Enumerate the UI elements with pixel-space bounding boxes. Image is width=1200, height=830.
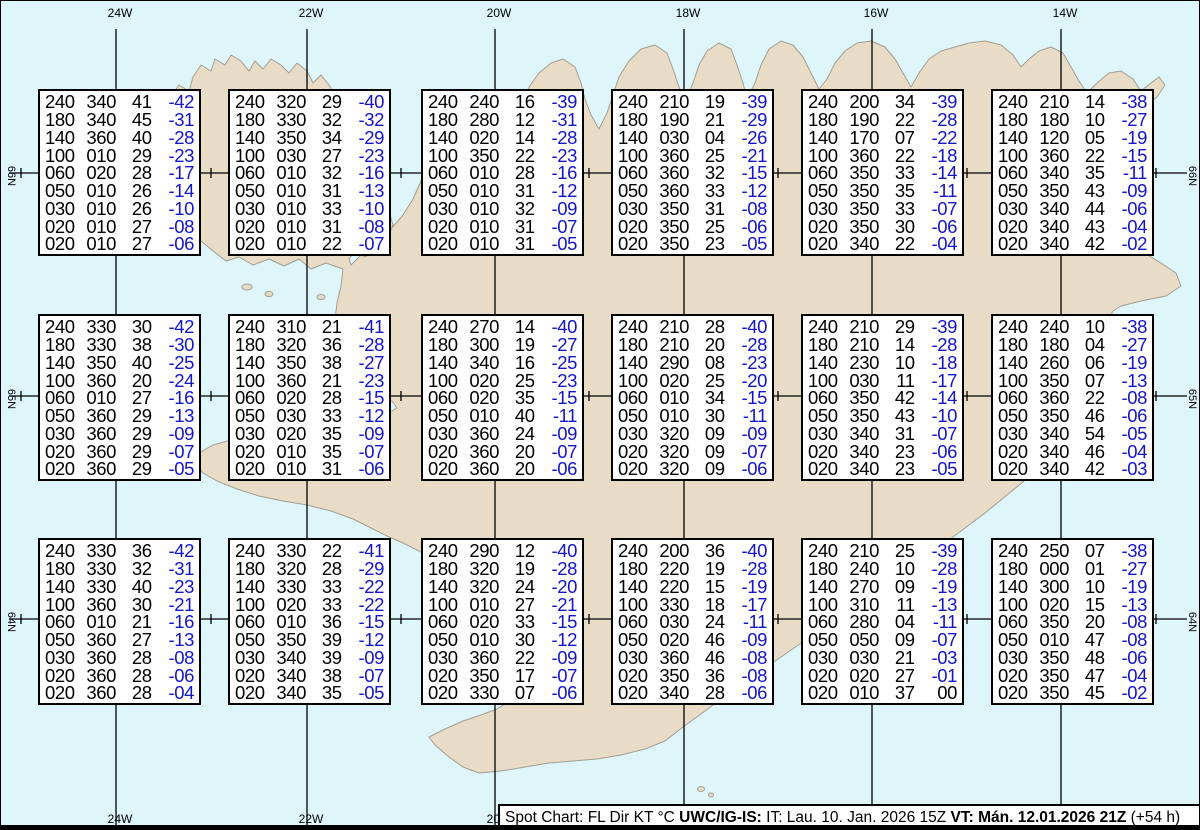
spot-wind-direction: 360 — [659, 182, 693, 199]
spot-row: 02035025-06 — [618, 218, 767, 235]
spot-wind-direction: 020 — [276, 389, 310, 406]
spot-row: 05035043-09 — [998, 182, 1147, 199]
spot-temperature: -02 — [1112, 235, 1147, 252]
spot-wind-direction: 030 — [659, 129, 693, 146]
spot-row: 02034028-06 — [618, 684, 767, 701]
spot-row: 14026006-19 — [998, 354, 1147, 371]
spot-temperature: -09 — [1112, 182, 1147, 199]
spot-flight-level: 050 — [235, 631, 269, 648]
spot-wind-speed-kt: 23 — [891, 460, 915, 477]
spot-flight-level: 140 — [235, 578, 269, 595]
spot-flight-level: 020 — [428, 684, 462, 701]
spot-temperature: -30 — [159, 336, 194, 353]
spot-flight-level: 050 — [998, 407, 1032, 424]
spot-flight-level: 020 — [998, 218, 1032, 235]
spot-row: 02034035-05 — [235, 684, 384, 701]
spot-wind-speed-kt: 31 — [318, 460, 342, 477]
spot-flight-level: 180 — [428, 336, 462, 353]
spot-wind-speed-kt: 24 — [511, 578, 535, 595]
spot-temperature: -06 — [922, 443, 957, 460]
spot-temperature: -06 — [1112, 200, 1147, 217]
spot-box: 24032029-4018033032-3214035034-291000302… — [228, 89, 391, 256]
spot-row: 05035035-11 — [808, 182, 957, 199]
spot-row: 03034031-07 — [808, 425, 957, 442]
spot-temperature: -20 — [732, 372, 767, 389]
spot-temperature: -26 — [732, 129, 767, 146]
spot-wind-direction: 030 — [276, 407, 310, 424]
spot-wind-speed-kt: 27 — [318, 147, 342, 164]
spot-flight-level: 020 — [618, 218, 652, 235]
spot-wind-direction: 350 — [1039, 182, 1073, 199]
spot-flight-level: 180 — [998, 560, 1032, 577]
spot-flight-level: 240 — [45, 93, 79, 110]
spot-flight-level: 020 — [45, 235, 79, 252]
spot-wind-direction: 210 — [659, 336, 693, 353]
spot-row: 10002033-22 — [235, 596, 384, 613]
spot-wind-speed-kt: 32 — [318, 111, 342, 128]
spot-wind-speed-kt: 11 — [891, 596, 915, 613]
spot-flight-level: 180 — [45, 111, 79, 128]
spot-wind-speed-kt: 07 — [1081, 542, 1105, 559]
spot-flight-level: 050 — [618, 407, 652, 424]
spot-temperature: -17 — [732, 596, 767, 613]
spot-wind-direction: 010 — [276, 182, 310, 199]
spot-wind-speed-kt: 12 — [511, 542, 535, 559]
spot-wind-speed-kt: 43 — [1081, 218, 1105, 235]
spot-temperature: -28 — [922, 560, 957, 577]
spot-wind-speed-kt: 14 — [511, 318, 535, 335]
spot-temperature: -11 — [922, 613, 957, 630]
longitude-label-top: 24W — [108, 6, 133, 20]
spot-flight-level: 020 — [45, 443, 79, 460]
spot-row: 18018010-27 — [998, 111, 1147, 128]
spot-wind-direction: 340 — [276, 667, 310, 684]
spot-row: 14023010-18 — [808, 354, 957, 371]
spot-row: 05001031-12 — [428, 182, 577, 199]
latitude-label-left: 66N — [5, 166, 17, 186]
spot-wind-direction: 360 — [1039, 389, 1073, 406]
spot-wind-direction: 010 — [469, 218, 503, 235]
spot-flight-level: 020 — [808, 667, 842, 684]
spot-temperature: -39 — [542, 93, 577, 110]
spot-wind-direction: 360 — [86, 667, 120, 684]
spot-flight-level: 050 — [618, 631, 652, 648]
spot-temperature: -14 — [159, 182, 194, 199]
spot-temperature: -12 — [542, 182, 577, 199]
spot-wind-speed-kt: 31 — [511, 218, 535, 235]
spot-wind-speed-kt: 25 — [701, 147, 725, 164]
spot-wind-direction: 350 — [849, 182, 883, 199]
spot-wind-speed-kt: 37 — [891, 684, 915, 701]
spot-row: 10003011-17 — [808, 372, 957, 389]
spot-wind-direction: 010 — [469, 164, 503, 181]
spot-wind-speed-kt: 12 — [511, 111, 535, 128]
spot-wind-direction: 360 — [86, 649, 120, 666]
spot-temperature: -42 — [159, 93, 194, 110]
spot-wind-direction: 340 — [1039, 200, 1073, 217]
spot-box: 24020034-3918019022-2814017007-221003602… — [801, 89, 964, 256]
spot-wind-direction: 340 — [1039, 425, 1073, 442]
spot-wind-direction: 360 — [469, 460, 503, 477]
spot-temperature: -07 — [542, 443, 577, 460]
spot-flight-level: 180 — [808, 560, 842, 577]
spot-row: 24027014-40 — [428, 318, 577, 335]
spot-wind-direction: 350 — [276, 129, 310, 146]
spot-wind-direction: 350 — [276, 631, 310, 648]
footer-text: (+54 h) — [1126, 809, 1180, 826]
spot-flight-level: 140 — [45, 129, 79, 146]
spot-wind-speed-kt: 30 — [128, 596, 152, 613]
latitude-label-right: 65N — [1186, 389, 1198, 409]
spot-wind-speed-kt: 33 — [701, 182, 725, 199]
spot-wind-direction: 010 — [1039, 631, 1073, 648]
spot-temperature: -09 — [159, 425, 194, 442]
longitude-label-top: 22W — [299, 6, 324, 20]
spot-temperature: -14 — [922, 164, 957, 181]
spot-row: 18032036-28 — [235, 336, 384, 353]
spot-temperature: -04 — [1112, 443, 1147, 460]
spot-wind-direction: 240 — [1039, 318, 1073, 335]
spot-temperature: -39 — [922, 318, 957, 335]
spot-temperature: -05 — [1112, 425, 1147, 442]
spot-row: 03002035-09 — [235, 425, 384, 442]
spot-temperature: -15 — [349, 389, 384, 406]
spot-flight-level: 020 — [808, 460, 842, 477]
spot-wind-direction: 010 — [276, 200, 310, 217]
spot-row: 05003033-12 — [235, 407, 384, 424]
latitude-label-left: 65N — [5, 389, 17, 409]
spot-wind-direction: 360 — [469, 649, 503, 666]
spot-flight-level: 100 — [235, 372, 269, 389]
spot-wind-speed-kt: 22 — [1081, 389, 1105, 406]
spot-wind-speed-kt: 28 — [318, 389, 342, 406]
spot-wind-direction: 010 — [276, 443, 310, 460]
spot-row: 18024010-28 — [808, 560, 957, 577]
spot-wind-speed-kt: 09 — [701, 460, 725, 477]
spot-flight-level: 020 — [45, 218, 79, 235]
spot-wind-speed-kt: 35 — [318, 425, 342, 442]
spot-row: 24025007-38 — [998, 542, 1147, 559]
spot-wind-direction: 350 — [1039, 407, 1073, 424]
spot-temperature: -15 — [732, 164, 767, 181]
spot-flight-level: 240 — [998, 318, 1032, 335]
spot-temperature: -28 — [732, 560, 767, 577]
spot-temperature: -22 — [349, 578, 384, 595]
spot-wind-speed-kt: 15 — [1081, 596, 1105, 613]
spot-row: 02034043-04 — [998, 218, 1147, 235]
spot-wind-speed-kt: 16 — [511, 354, 535, 371]
spot-flight-level: 020 — [998, 667, 1032, 684]
spot-wind-speed-kt: 14 — [511, 129, 535, 146]
spot-wind-speed-kt: 29 — [128, 407, 152, 424]
spot-temperature: -14 — [922, 389, 957, 406]
spot-row: 06036032-15 — [618, 164, 767, 181]
spot-wind-speed-kt: 46 — [701, 649, 725, 666]
spot-wind-speed-kt: 22 — [511, 649, 535, 666]
spot-row: 14035034-29 — [235, 129, 384, 146]
spot-flight-level: 180 — [235, 560, 269, 577]
spot-flight-level: 140 — [808, 129, 842, 146]
spot-wind-speed-kt: 10 — [1081, 318, 1105, 335]
spot-flight-level: 180 — [998, 111, 1032, 128]
spot-row: 05002046-09 — [618, 631, 767, 648]
spot-wind-speed-kt: 27 — [128, 235, 152, 252]
spot-row: 02001031-05 — [428, 235, 577, 252]
spot-wind-speed-kt: 33 — [318, 578, 342, 595]
spot-box: 24025007-3818000001-2714030010-191000201… — [991, 538, 1154, 705]
spot-row: 10036020-24 — [45, 372, 194, 389]
spot-row: 05036029-13 — [45, 407, 194, 424]
spot-wind-direction: 350 — [1039, 684, 1073, 701]
spot-wind-speed-kt: 31 — [318, 218, 342, 235]
spot-wind-speed-kt: 19 — [511, 560, 535, 577]
spot-row: 06001027-16 — [45, 389, 194, 406]
spot-flight-level: 020 — [428, 460, 462, 477]
spot-box: 24029012-4018032019-2814032024-201000102… — [421, 538, 584, 705]
spot-row: 14027009-19 — [808, 578, 957, 595]
spot-flight-level: 030 — [45, 649, 79, 666]
longitude-label-top: 14W — [1053, 6, 1078, 20]
spot-flight-level: 020 — [428, 667, 462, 684]
spot-wind-direction: 340 — [276, 649, 310, 666]
spot-temperature: -15 — [349, 613, 384, 630]
spot-flight-level: 240 — [808, 318, 842, 335]
spot-row: 10036022-15 — [998, 147, 1147, 164]
spot-wind-direction: 350 — [849, 407, 883, 424]
spot-row: 02001027-08 — [45, 218, 194, 235]
spot-temperature: -21 — [732, 147, 767, 164]
spot-wind-direction: 010 — [86, 200, 120, 217]
spot-wind-direction: 170 — [849, 129, 883, 146]
spot-wind-speed-kt: 17 — [511, 667, 535, 684]
latitude-label-right: 66N — [1186, 166, 1198, 186]
spot-row: 03001026-10 — [45, 200, 194, 217]
spot-row: 14032024-20 — [428, 578, 577, 595]
spot-wind-direction: 280 — [849, 613, 883, 630]
spot-row: 05035046-06 — [998, 407, 1147, 424]
spot-wind-direction: 350 — [849, 164, 883, 181]
spot-wind-speed-kt: 04 — [1081, 336, 1105, 353]
spot-row: 02035047-04 — [998, 667, 1147, 684]
spot-flight-level: 060 — [428, 164, 462, 181]
spot-flight-level: 140 — [618, 354, 652, 371]
spot-wind-speed-kt: 10 — [1081, 111, 1105, 128]
spot-wind-direction: 310 — [276, 318, 310, 335]
spot-wind-speed-kt: 33 — [318, 596, 342, 613]
spot-wind-speed-kt: 44 — [1081, 200, 1105, 217]
spot-row: 14012005-19 — [998, 129, 1147, 146]
spot-temperature: -11 — [732, 407, 767, 424]
spot-wind-speed-kt: 23 — [701, 235, 725, 252]
spot-box: 24021029-3918021014-2814023010-181000301… — [801, 314, 964, 481]
spot-row: 06002033-15 — [428, 613, 577, 630]
spot-row: 18032028-29 — [235, 560, 384, 577]
spot-wind-speed-kt: 27 — [511, 596, 535, 613]
spot-wind-speed-kt: 34 — [891, 93, 915, 110]
spot-wind-speed-kt: 04 — [891, 613, 915, 630]
spot-wind-direction: 010 — [86, 389, 120, 406]
spot-temperature: -06 — [159, 235, 194, 252]
spot-wind-direction: 360 — [659, 164, 693, 181]
spot-temperature: -28 — [159, 129, 194, 146]
spot-flight-level: 140 — [428, 354, 462, 371]
spot-temperature: -09 — [542, 200, 577, 217]
spot-row: 10002025-20 — [618, 372, 767, 389]
spot-row: 02034042-02 — [998, 235, 1147, 252]
spot-temperature: -19 — [1112, 578, 1147, 595]
spot-box: 24033030-4218033038-3014035040-251003602… — [38, 314, 201, 481]
spot-wind-speed-kt: 43 — [891, 407, 915, 424]
spot-wind-speed-kt: 19 — [511, 336, 535, 353]
spot-wind-direction: 020 — [849, 667, 883, 684]
spot-temperature: -39 — [732, 93, 767, 110]
spot-row: 14003004-26 — [618, 129, 767, 146]
spot-wind-direction: 360 — [659, 147, 693, 164]
spot-flight-level: 180 — [808, 111, 842, 128]
spot-temperature: -09 — [542, 649, 577, 666]
spot-wind-direction: 010 — [276, 460, 310, 477]
spot-flight-level: 240 — [45, 318, 79, 335]
spot-wind-direction: 030 — [659, 613, 693, 630]
spot-flight-level: 020 — [235, 235, 269, 252]
spot-flight-level: 100 — [235, 147, 269, 164]
spot-wind-speed-kt: 31 — [701, 200, 725, 217]
spot-wind-direction: 320 — [276, 336, 310, 353]
spot-wind-direction: 340 — [849, 460, 883, 477]
spot-row: 10035007-13 — [998, 372, 1147, 389]
spot-row: 02036020-06 — [428, 460, 577, 477]
spot-wind-speed-kt: 36 — [701, 667, 725, 684]
spot-row: 24021029-39 — [808, 318, 957, 335]
spot-temperature: -23 — [159, 147, 194, 164]
spot-flight-level: 100 — [428, 596, 462, 613]
spot-wind-direction: 350 — [659, 235, 693, 252]
spot-temperature: -10 — [922, 407, 957, 424]
spot-wind-direction: 330 — [86, 318, 120, 335]
spot-temperature: -23 — [732, 354, 767, 371]
spot-temperature: -07 — [732, 443, 767, 460]
spot-wind-speed-kt: 18 — [701, 596, 725, 613]
spot-temperature: -39 — [922, 93, 957, 110]
spot-wind-direction: 190 — [849, 111, 883, 128]
spot-flight-level: 140 — [618, 578, 652, 595]
spot-wind-direction: 350 — [1039, 613, 1073, 630]
spot-wind-direction: 340 — [659, 684, 693, 701]
spot-row: 14033033-22 — [235, 578, 384, 595]
spot-wind-speed-kt: 40 — [511, 407, 535, 424]
longitude-label-top: 18W — [676, 6, 701, 20]
spot-flight-level: 180 — [428, 111, 462, 128]
spot-wind-speed-kt: 42 — [891, 389, 915, 406]
spot-wind-speed-kt: 28 — [701, 318, 725, 335]
spot-wind-direction: 350 — [659, 218, 693, 235]
spot-row: 05036027-13 — [45, 631, 194, 648]
spot-wind-direction: 010 — [86, 613, 120, 630]
spot-temperature: -06 — [732, 684, 767, 701]
spot-flight-level: 020 — [235, 460, 269, 477]
spot-temperature: -16 — [542, 164, 577, 181]
spot-wind-direction: 360 — [86, 372, 120, 389]
spot-wind-speed-kt: 21 — [891, 649, 915, 666]
spot-temperature: -39 — [922, 542, 957, 559]
spot-temperature: -23 — [349, 147, 384, 164]
spot-flight-level: 060 — [618, 164, 652, 181]
spot-row: 02036029-07 — [45, 443, 194, 460]
spot-wind-direction: 360 — [86, 129, 120, 146]
spot-wind-speed-kt: 26 — [128, 200, 152, 217]
spot-wind-direction: 340 — [849, 235, 883, 252]
spot-row: 02034023-05 — [808, 460, 957, 477]
spot-wind-speed-kt: 22 — [891, 111, 915, 128]
spot-row: 06001032-16 — [235, 164, 384, 181]
spot-wind-direction: 340 — [1039, 443, 1073, 460]
spot-row: 24024010-38 — [998, 318, 1147, 335]
spot-temperature: -12 — [732, 182, 767, 199]
spot-wind-direction: 360 — [86, 631, 120, 648]
spot-wind-speed-kt: 20 — [701, 336, 725, 353]
spot-row: 10001027-21 — [428, 596, 577, 613]
spot-wind-speed-kt: 25 — [701, 372, 725, 389]
spot-wind-speed-kt: 22 — [891, 147, 915, 164]
spot-flight-level: 060 — [998, 613, 1032, 630]
spot-row: 05035039-12 — [235, 631, 384, 648]
spot-row: 18033032-32 — [235, 111, 384, 128]
spot-row: 02001031-08 — [235, 218, 384, 235]
spot-temperature: -07 — [922, 425, 957, 442]
spot-temperature: -10 — [349, 200, 384, 217]
spot-wind-speed-kt: 14 — [891, 336, 915, 353]
spot-temperature: -08 — [1112, 631, 1147, 648]
spot-row: 06036022-08 — [998, 389, 1147, 406]
spot-temperature: -22 — [349, 596, 384, 613]
spot-flight-level: 060 — [618, 389, 652, 406]
spot-row: 06001036-15 — [235, 613, 384, 630]
spot-wind-speed-kt: 29 — [128, 460, 152, 477]
spot-row: 02034023-06 — [808, 443, 957, 460]
spot-row: 18030019-27 — [428, 336, 577, 353]
spot-wind-direction: 010 — [86, 147, 120, 164]
spot-flight-level: 060 — [808, 164, 842, 181]
spot-temperature: -06 — [732, 460, 767, 477]
spot-wind-speed-kt: 45 — [1081, 684, 1105, 701]
spot-flight-level: 020 — [618, 443, 652, 460]
spot-wind-direction: 010 — [469, 235, 503, 252]
spot-flight-level: 100 — [45, 147, 79, 164]
spot-temperature: -08 — [732, 667, 767, 684]
spot-wind-direction: 010 — [469, 631, 503, 648]
spot-box: 24021028-4018021020-2814029008-231000202… — [611, 314, 774, 481]
spot-row: 18019021-29 — [618, 111, 767, 128]
spot-wind-speed-kt: 07 — [1081, 372, 1105, 389]
spot-flight-level: 100 — [998, 596, 1032, 613]
spot-flight-level: 100 — [808, 372, 842, 389]
spot-row: 05001026-14 — [45, 182, 194, 199]
spot-wind-direction: 340 — [849, 443, 883, 460]
spot-flight-level: 140 — [235, 129, 269, 146]
spot-temperature: -06 — [542, 684, 577, 701]
spot-flight-level: 100 — [998, 372, 1032, 389]
spot-wind-speed-kt: 29 — [128, 147, 152, 164]
spot-flight-level: 030 — [618, 200, 652, 217]
spot-temperature: -15 — [542, 613, 577, 630]
spot-temperature: -40 — [542, 318, 577, 335]
spot-wind-direction: 360 — [86, 425, 120, 442]
spot-flight-level: 020 — [808, 684, 842, 701]
spot-wind-speed-kt: 35 — [1081, 164, 1105, 181]
spot-row: 24033036-42 — [45, 542, 194, 559]
footer-text: IT: Lau. 10. Jan. 2026 15Z — [762, 809, 951, 826]
spot-wind-direction: 340 — [469, 354, 503, 371]
